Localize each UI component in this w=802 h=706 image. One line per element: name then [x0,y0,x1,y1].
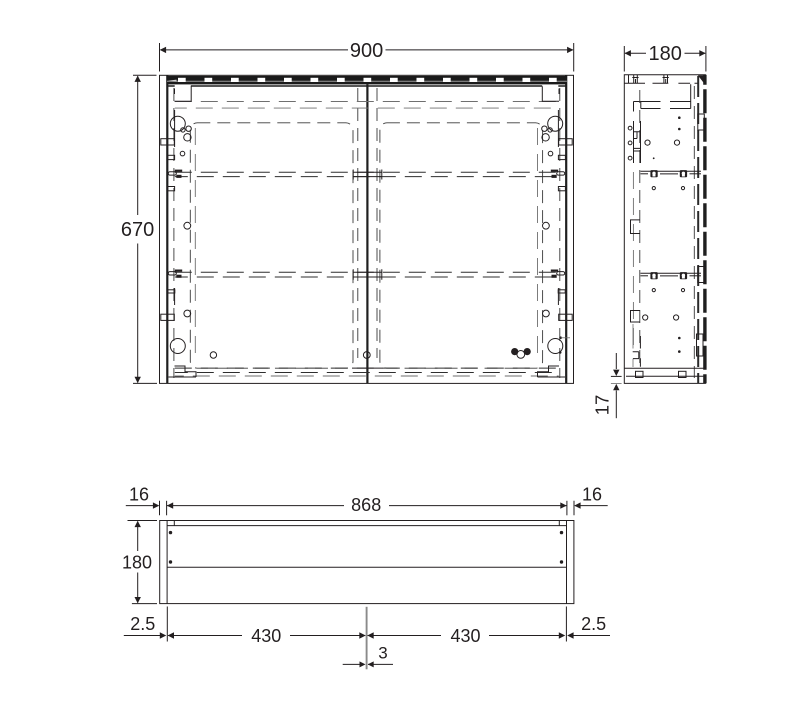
svg-text:900: 900 [350,40,383,62]
svg-text:670: 670 [121,219,154,241]
svg-text:3: 3 [378,644,387,663]
svg-text:2.5: 2.5 [581,614,606,634]
svg-text:430: 430 [450,626,480,646]
svg-text:868: 868 [351,495,381,515]
svg-text:430: 430 [251,626,281,646]
svg-text:16: 16 [129,484,149,504]
svg-text:2.5: 2.5 [130,614,155,634]
svg-text:17: 17 [592,395,613,416]
svg-text:16: 16 [582,484,602,504]
svg-text:180: 180 [649,43,682,65]
svg-text:180: 180 [122,553,152,573]
